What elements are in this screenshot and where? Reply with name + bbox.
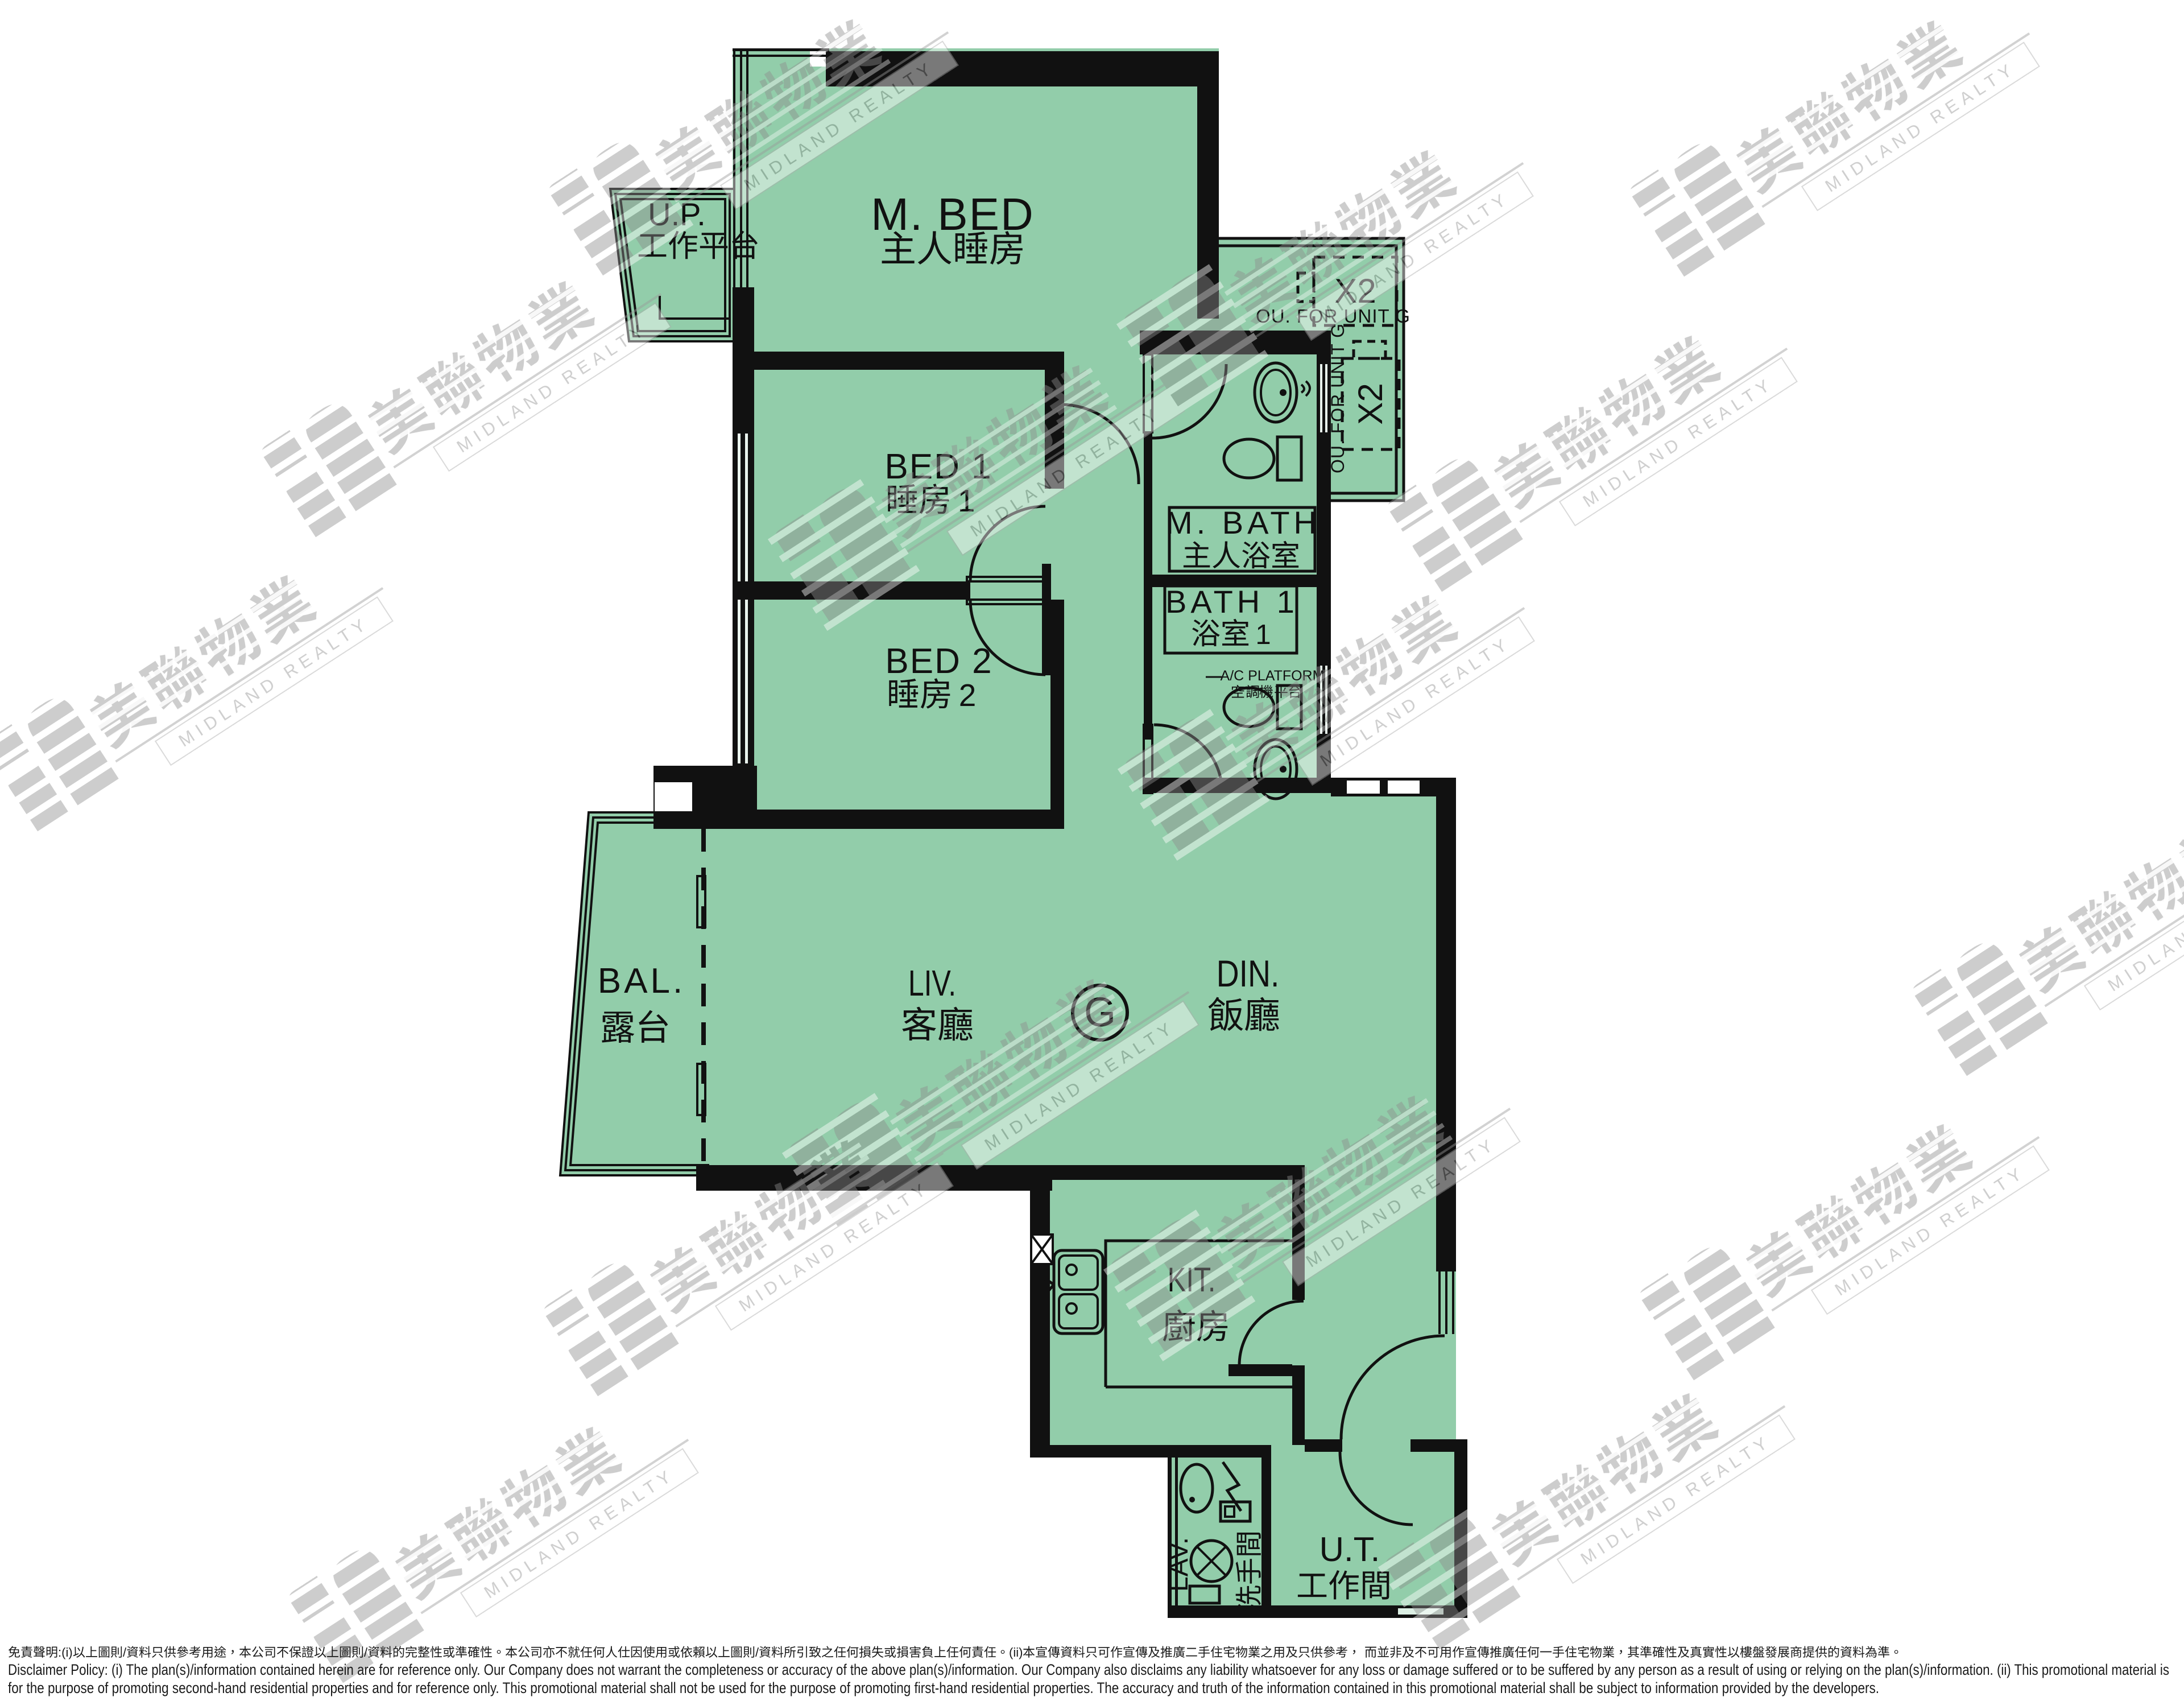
svg-text:BAL.: BAL. <box>598 961 685 1001</box>
svg-text::(i): :(i) <box>58 1645 73 1659</box>
svg-text:LAV.: LAV. <box>1164 1537 1194 1592</box>
svg-text:M. BATH: M. BATH <box>1166 505 1321 540</box>
svg-text:for the purpose of promoting s: for the purpose of promoting second-hand… <box>8 1679 1879 1696</box>
svg-text:1: 1 <box>1255 620 1271 650</box>
svg-text:Disclaimer Policy: (i) The pla: Disclaimer Policy: (i) The plan(s)/infor… <box>8 1661 2169 1678</box>
svg-text:DIN.: DIN. <box>1217 952 1280 994</box>
svg-text:A/C PLATFORM: A/C PLATFORM <box>1221 668 1325 684</box>
svg-text:U.T.: U.T. <box>1319 1530 1380 1568</box>
svg-text:/: / <box>364 1645 368 1659</box>
svg-text:(ii): (ii) <box>1009 1645 1023 1659</box>
svg-text:BED 2: BED 2 <box>885 642 992 681</box>
svg-text:BATH 1: BATH 1 <box>1165 584 1298 620</box>
svg-text:/: / <box>755 1645 759 1659</box>
svg-text:LIV.: LIV. <box>908 963 956 1004</box>
svg-text:X2: X2 <box>1351 383 1389 424</box>
svg-text:OU. FOR UNIT G: OU. FOR UNIT G <box>1327 323 1348 473</box>
svg-text:2: 2 <box>959 678 977 713</box>
svg-text:/: / <box>123 1645 127 1659</box>
